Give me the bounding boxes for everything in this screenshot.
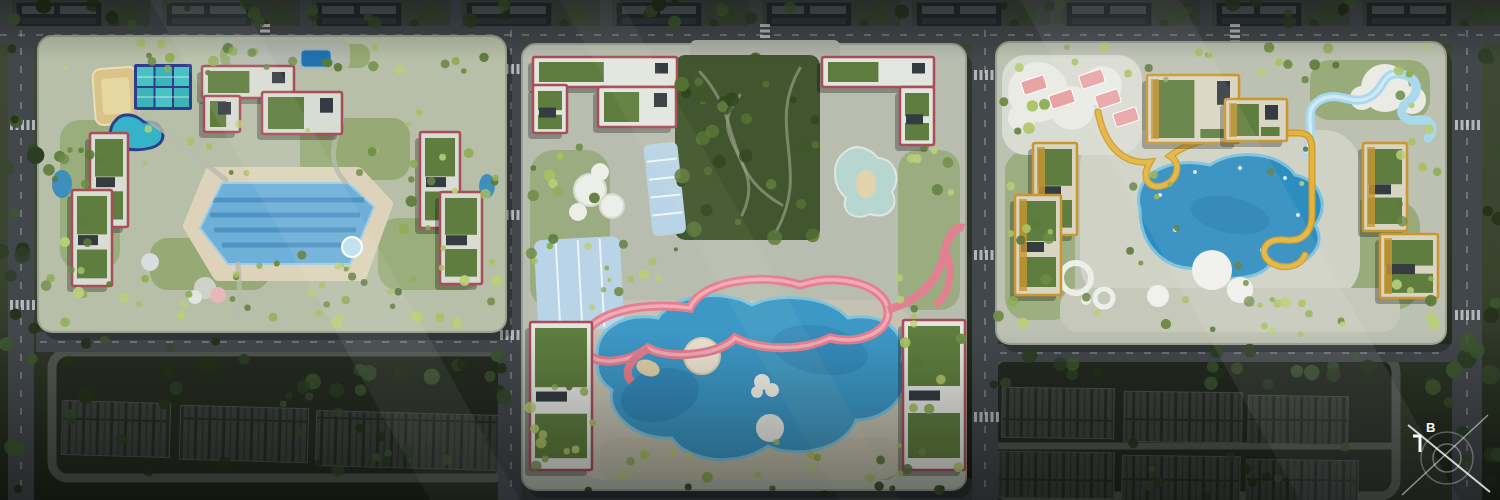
tree [589,305,595,311]
compass-north-label: B [1426,420,1435,435]
tree [439,154,446,161]
tree [334,63,342,71]
multi-sport-court-cluster [134,64,192,110]
tree [1409,102,1415,108]
tree [1161,319,1171,329]
tree [1039,99,1050,110]
tree [1014,127,1021,134]
tree [427,177,436,186]
crosswalk-bar [991,70,994,80]
tree [1258,68,1266,76]
tree [11,116,19,124]
tree [368,147,377,156]
tree [1309,59,1320,70]
tree [1395,91,1405,101]
tree [806,229,820,243]
tree [910,320,917,327]
tree [416,110,422,116]
tree [1015,63,1024,72]
tree [1430,319,1440,329]
tree [14,247,30,263]
tree [5,270,17,282]
tree [480,189,491,200]
tree [269,313,278,322]
green-roof [77,196,107,234]
tree [1031,217,1042,228]
crosswalk-bar [21,300,24,310]
tree [1,161,15,175]
tree [141,275,149,283]
tree [439,265,445,271]
green-roof [828,62,878,82]
tree [43,164,55,176]
crosswalk-bar [16,300,19,310]
tree [436,313,445,322]
tree [725,93,739,107]
tree [1392,280,1402,290]
tree [1483,206,1494,217]
tree [1007,296,1018,307]
tree [98,157,104,163]
tree [492,275,503,286]
tree [244,305,250,311]
tree [627,276,634,283]
tree [1407,287,1414,294]
tree [920,145,927,152]
tree [528,190,539,201]
tree [10,208,20,218]
tree [229,170,234,175]
tree [931,148,937,154]
tree [1418,163,1427,172]
tree [256,263,262,269]
crosswalk-bar [27,300,30,310]
tree [896,296,904,304]
tree [548,234,558,244]
crosswalk-bar [980,250,983,260]
tree [706,125,719,138]
tree [41,280,52,291]
tree [185,291,192,298]
crosswalk-bar [1472,310,1475,320]
tree [52,176,58,182]
crosswalk-bar [1477,310,1480,320]
building [435,192,482,290]
tree [62,65,68,71]
tree [1022,224,1031,233]
tree [1082,293,1091,302]
tree [604,266,609,271]
tree [1043,232,1055,244]
crosswalk-bar [1466,310,1469,320]
tree [895,274,903,282]
tree [78,147,84,153]
building [1375,234,1438,304]
tree [1332,61,1339,68]
tree [796,199,806,209]
tree [1023,122,1035,134]
crosswalk-bar [1461,310,1464,320]
tree [713,155,726,168]
tree [1433,168,1441,176]
tree [1283,60,1292,69]
crosswalk-bar [32,300,35,310]
tree [492,175,499,182]
tree [911,305,918,312]
tree [408,176,414,182]
tree [487,298,495,306]
tree [619,240,628,249]
green-roof [538,91,562,110]
tree [1048,229,1053,234]
building [895,87,934,151]
tree [556,153,563,160]
tree [1302,76,1309,83]
tree [206,143,212,149]
tree [1303,147,1308,152]
tree [1484,307,1500,323]
tree [1428,276,1433,281]
tree [78,267,85,274]
crosswalk-bar [1472,120,1475,130]
site-plan-canvas: B [0,0,1500,500]
tree [1040,274,1051,285]
tree [948,189,954,195]
tree [912,313,918,319]
tree [1299,181,1304,186]
tree [739,149,752,162]
tree [1016,236,1025,245]
tree [459,275,470,286]
tree [932,184,943,195]
crosswalk-bar [1455,310,1458,320]
crosswalk-bar [1455,120,1458,130]
tree [1094,310,1101,317]
tree [1396,150,1406,160]
tree [526,248,537,259]
green-roof [539,62,604,82]
tree [607,278,611,282]
tree [767,230,782,245]
tree [406,122,411,127]
tree [187,138,195,146]
tree [489,259,495,265]
tree [674,77,689,92]
crosswalk-bar [980,70,983,80]
tree [119,293,129,303]
tree [1138,261,1143,266]
tree [741,113,752,124]
tree [452,188,458,194]
crosswalk-bar [27,120,30,130]
building [1010,195,1061,301]
green-roof [1385,240,1433,266]
tree [993,311,1004,322]
crosswalk-bar [985,70,988,80]
tree [532,258,538,264]
crosswalk-bar [517,210,520,220]
tree [85,150,95,160]
tree [81,180,89,188]
tree [356,169,363,176]
tree [452,318,462,328]
tree [649,258,657,266]
tree [531,165,537,171]
tree [812,141,819,148]
tree [398,224,409,235]
crosswalk-bar [10,300,13,310]
crosswalk-bar [974,70,977,80]
tree [83,238,92,247]
tree [766,179,777,190]
tree [655,275,662,282]
tree [1027,100,1038,111]
tree [811,115,820,124]
tree [411,276,416,281]
tree [1018,318,1029,329]
crosswalk-bar [1477,120,1480,130]
crosswalk-bar [985,250,988,260]
tree [180,300,187,307]
tree [440,245,446,251]
tree [795,140,807,152]
tree [1126,247,1134,255]
tree [1406,70,1413,77]
tree [639,269,649,279]
tree [410,160,418,168]
tree [177,311,185,319]
building [528,85,567,139]
tree [78,216,89,227]
tree [585,243,592,250]
tree [1425,124,1435,134]
green-roof [905,93,929,116]
tree [601,287,606,292]
tree [368,61,378,71]
crosswalk-bar [1461,120,1464,130]
tree [464,148,474,158]
tree [674,247,678,251]
tree [1007,182,1015,190]
tree [395,65,404,74]
crosswalk-bar [517,64,520,74]
tree [67,147,72,152]
tree [762,81,769,88]
crosswalk-bar [1466,120,1469,130]
masterplan-rendering: B [0,0,1500,500]
tree [233,271,240,278]
tree [106,281,112,287]
crosswalk-bar [974,250,977,260]
tree [136,301,142,307]
tree [316,310,323,317]
tree [164,65,171,72]
tree [60,237,70,247]
tree [406,196,417,207]
tree [27,147,45,165]
tree [68,267,74,273]
tree [230,296,236,302]
tree [73,287,84,298]
tree [60,317,70,327]
tree [441,60,450,69]
tree [999,97,1008,106]
tree [1394,66,1404,76]
crosswalk-bar [32,120,35,130]
tree [1396,201,1402,207]
crosswalk-bar [991,250,994,260]
tree [1397,216,1408,227]
tree [143,161,147,165]
tree [576,144,583,151]
west-pond-left [52,170,72,198]
tree [461,68,467,74]
tree [589,193,600,204]
tree [1425,295,1437,307]
tree [1408,138,1415,145]
tree [145,125,153,133]
tree [614,287,623,296]
tree [943,157,954,168]
tree [1008,230,1015,237]
tree [790,96,797,103]
tree [694,97,701,104]
tree [274,261,280,267]
tree [425,225,430,230]
green-roof [445,198,477,235]
green-roof [95,139,123,177]
tree [694,77,703,86]
tree [553,186,563,196]
tree [10,309,21,320]
tree [913,154,922,163]
tree [59,154,70,165]
